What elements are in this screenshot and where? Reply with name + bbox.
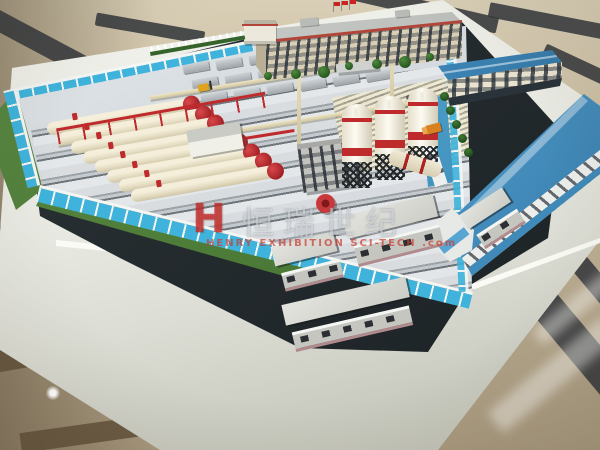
palm-tree [446,106,455,115]
palm-tree [440,92,449,101]
palm-tree [452,120,461,129]
palm-tree [464,148,473,157]
palm-tree [458,134,467,143]
photo-industrial-plant-scale-model: H 恒瑞世纪 HENRY EXHIBITION SCI-TECH .com [0,0,600,450]
